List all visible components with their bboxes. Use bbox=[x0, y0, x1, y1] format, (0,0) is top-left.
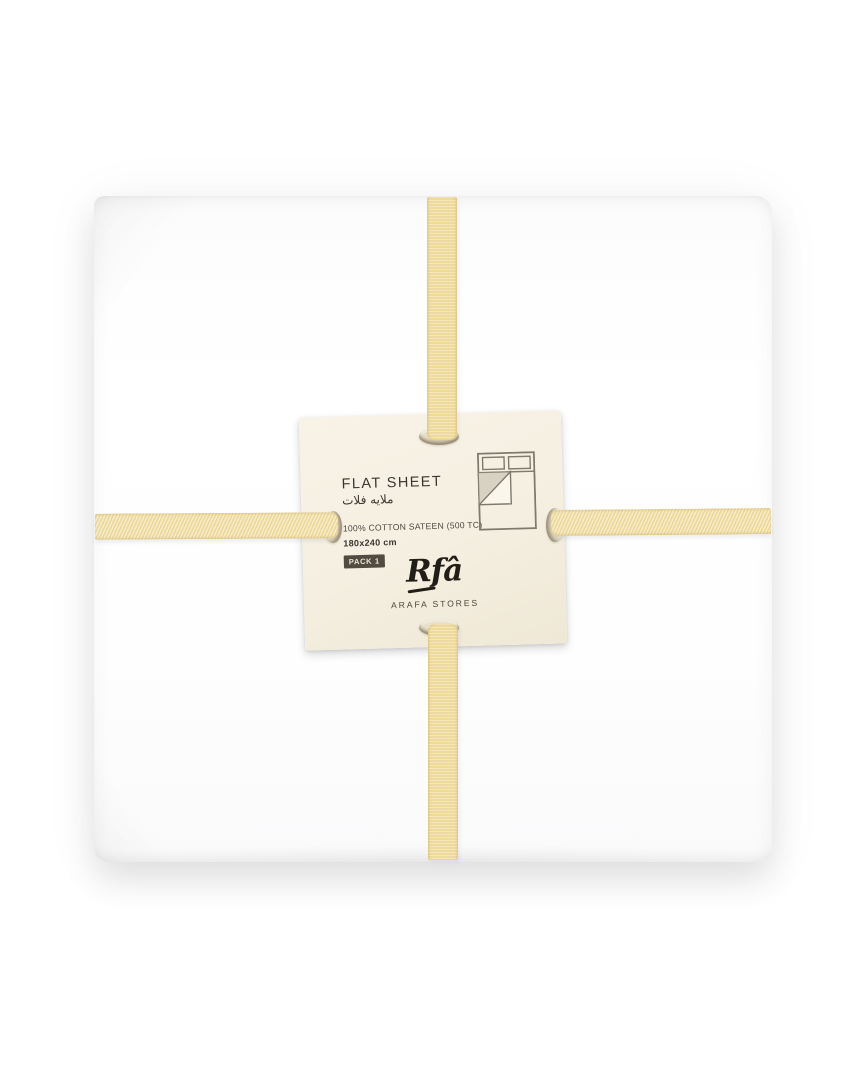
product-title-arabic: ملايه فلات bbox=[342, 490, 482, 508]
product-photo: FLAT SHEET ملايه فلات 100% COTTON SATEEN… bbox=[0, 0, 864, 1080]
brand-block: Rfâ ARAFA STORES bbox=[303, 552, 566, 612]
ribbon-vertical-bottom bbox=[428, 624, 458, 860]
brand-logo: Rfâ bbox=[303, 552, 566, 590]
bed-icon bbox=[477, 451, 537, 536]
store-name: ARAFA STORES bbox=[304, 595, 566, 612]
ribbon-horizontal-left bbox=[95, 512, 338, 539]
material-spec: 100% COTTON SATEEN (500 TC) bbox=[343, 520, 483, 534]
ribbon-vertical-top bbox=[427, 197, 457, 440]
size-spec: 180x240 cm bbox=[343, 535, 483, 549]
ribbon-horizontal-right bbox=[551, 508, 771, 536]
